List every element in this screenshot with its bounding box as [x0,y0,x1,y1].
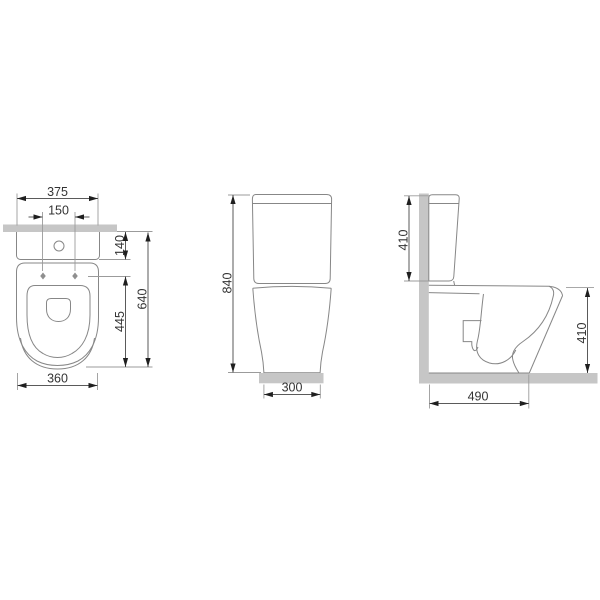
dimension-overall-depth: 640 [136,233,151,368]
wall-strip-side [419,194,429,384]
bowl-front-outline [253,288,331,373]
wall-strip [3,225,117,233]
dim-label-490: 490 [468,390,489,404]
cistern-top-outline [17,229,100,260]
dimension-pan-height: 410 [566,288,594,373]
dim-label-300: 300 [282,381,303,395]
bowl-cavity-curve [477,294,516,364]
dim-label-410-cistern: 410 [397,230,411,251]
arrowhead [123,277,128,286]
arrowhead [520,401,529,406]
arrowhead [89,196,98,201]
arrowhead [34,214,43,219]
bowl-front-slant [529,296,562,374]
dim-label-640: 640 [136,289,150,310]
seat-front-tip [549,286,554,296]
arrowhead [17,196,26,201]
floor-strip-side [419,373,598,384]
toilet-dimensions-drawing: 375 150 140 445 640 [0,0,600,600]
arrowhead [585,364,590,373]
seat-outer-outline [17,263,99,366]
bowl-inner-front-curve [512,296,553,373]
arrowhead [406,272,411,281]
arrowhead [311,392,320,397]
cistern-side-outline [429,195,459,281]
top-view [3,212,117,369]
seat-underside-line [429,293,480,294]
dim-label-360: 360 [47,372,68,386]
cistern-base-step [454,281,455,285]
arrowhead [264,392,273,397]
dimension-hole-spacing: 150 [29,204,90,220]
arrowhead [406,196,411,205]
technical-drawing-page: 375 150 140 445 640 [0,0,600,600]
dim-label-150: 150 [48,204,69,218]
arrowhead [18,383,27,388]
arrowhead [89,383,98,388]
side-view [419,194,598,384]
arrowhead [230,364,235,373]
dim-label-840: 840 [221,273,235,294]
front-view [252,195,331,384]
dim-label-410-pan: 410 [575,323,589,344]
arrowhead [430,401,439,406]
bowl-rim-line [253,286,331,288]
cistern-front-outline [252,195,331,284]
seat-top-line [429,285,563,295]
dim-label-375: 375 [47,185,68,199]
arrowhead [75,214,84,219]
arrowhead [230,195,235,204]
dimension-pan-width: 360 [18,372,98,391]
dim-label-140: 140 [113,235,127,256]
arrowhead [585,288,590,297]
arrowhead [123,358,128,367]
dimension-cistern-depth: 140 [99,232,153,260]
dim-label-445: 445 [113,311,127,332]
arrowhead [145,233,150,242]
arrowhead [145,358,150,367]
